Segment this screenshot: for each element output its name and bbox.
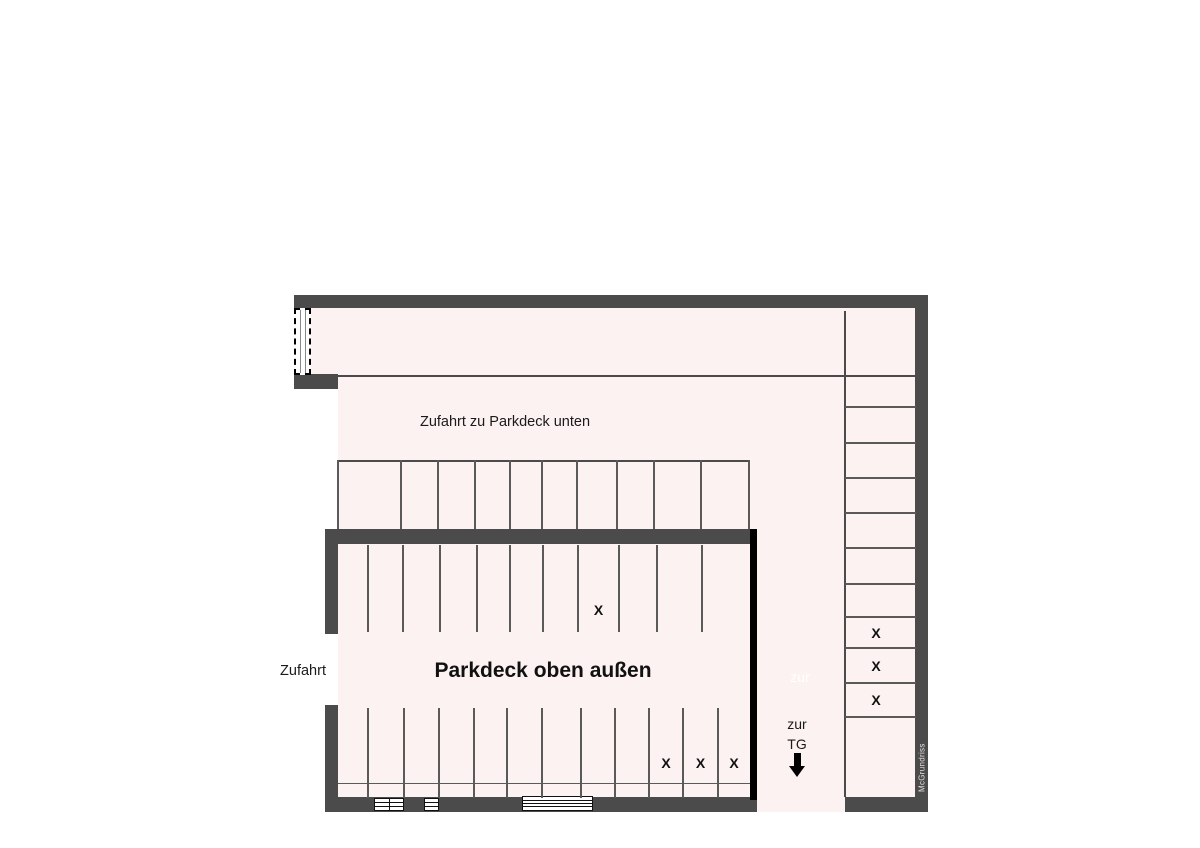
parking-divider	[700, 460, 702, 529]
wall-top	[294, 295, 928, 308]
parking-divider	[845, 547, 916, 549]
wall-bottom-right	[845, 797, 928, 812]
parking-divider	[509, 545, 511, 633]
parking-divider	[656, 545, 658, 633]
floor-plan: Zufahrt zu Parkdeck unten Parkdeck oben …	[0, 0, 1200, 848]
parking-divider	[845, 616, 916, 618]
parking-divider	[845, 406, 916, 408]
line-bottom-walk-strip	[338, 783, 750, 785]
watermark: McGrundriss	[916, 741, 928, 794]
parking-divider	[367, 708, 369, 798]
parking-divider	[648, 708, 650, 798]
parking-divider	[653, 460, 655, 529]
parking-divider	[476, 545, 478, 633]
parking-divider	[473, 708, 475, 798]
ghost-text: zur	[790, 669, 809, 685]
parking-divider	[577, 545, 579, 633]
occupied-marker: X	[729, 755, 738, 771]
occupied-marker: X	[871, 658, 880, 674]
parking-divider	[748, 460, 750, 529]
inner-deck-wall-left-upper	[325, 529, 338, 634]
down-arrow-icon	[789, 766, 805, 777]
parking-divider	[717, 708, 719, 798]
parking-divider	[438, 708, 440, 798]
parking-divider	[367, 545, 369, 633]
parking-divider	[845, 512, 916, 514]
wall-right	[915, 295, 928, 812]
parking-divider	[541, 460, 543, 529]
parking-divider	[845, 583, 916, 585]
stairs-symbol	[374, 798, 404, 811]
parking-divider	[845, 647, 916, 649]
driveway-lane-label: Zufahrt zu Parkdeck unten	[420, 414, 590, 430]
line-right-column-edge	[844, 311, 846, 797]
parking-divider	[616, 460, 618, 529]
parking-divider	[474, 460, 476, 529]
floor-driveway-lane	[338, 376, 845, 460]
line-corridor-bottom	[311, 375, 916, 377]
occupied-marker: X	[594, 602, 603, 618]
gate-symbol	[294, 308, 311, 375]
parking-divider	[576, 460, 578, 529]
parking-divider	[542, 545, 544, 633]
parking-divider	[439, 545, 441, 633]
occupied-marker: X	[696, 755, 705, 771]
parking-divider	[337, 460, 339, 529]
floor-top-corridor	[311, 308, 916, 376]
parking-divider	[509, 460, 511, 529]
gate-rail-icon	[300, 310, 306, 373]
stairs-symbol	[424, 798, 439, 811]
parking-divider	[845, 682, 916, 684]
parking-divider	[845, 716, 916, 718]
parking-divider	[541, 708, 543, 798]
inner-deck-wall-right	[750, 529, 757, 800]
parking-divider	[437, 460, 439, 529]
occupied-marker: X	[871, 692, 880, 708]
stairs-symbol	[522, 796, 593, 811]
parking-divider	[580, 708, 582, 798]
occupied-marker: X	[871, 625, 880, 641]
to-underground-garage-label: zur TG	[787, 714, 806, 754]
parking-divider	[400, 460, 402, 529]
parking-divider	[845, 477, 916, 479]
parking-divider	[845, 442, 916, 444]
parking-divider	[614, 708, 616, 798]
inner-deck-wall-top	[325, 529, 757, 544]
plan-title: Parkdeck oben außen	[434, 659, 651, 683]
parking-divider	[618, 545, 620, 633]
parking-divider	[682, 708, 684, 798]
entrance-label: Zufahrt	[280, 663, 326, 679]
floor-right-parking-column	[845, 308, 916, 797]
parking-divider	[402, 545, 404, 633]
inner-deck-wall-left-lower	[325, 705, 338, 812]
parking-divider	[701, 545, 703, 633]
parking-divider	[506, 708, 508, 798]
occupied-marker: X	[661, 755, 670, 771]
parking-divider	[403, 708, 405, 798]
